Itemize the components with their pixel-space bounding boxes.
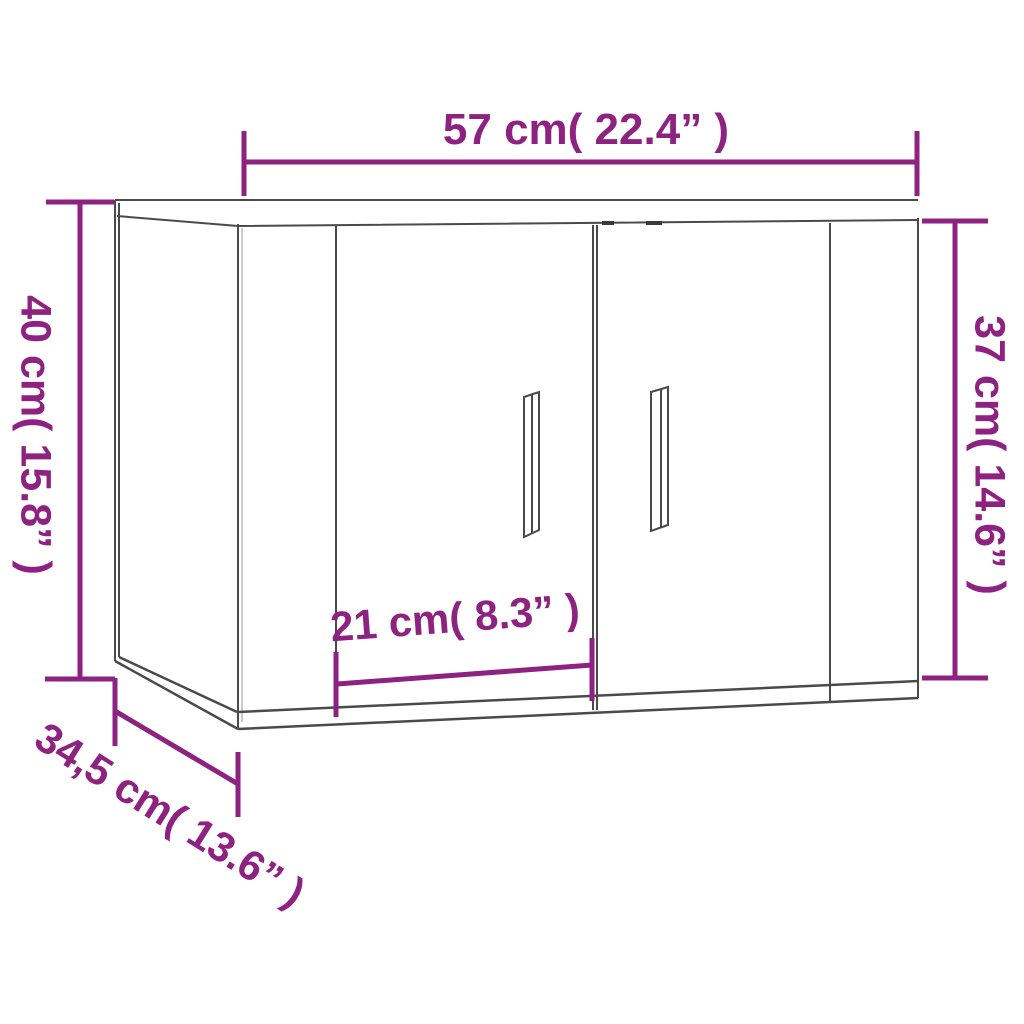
left-height-dimension-label: 40 cm( 15.8” ) <box>11 295 60 575</box>
cabinet-top-panel <box>115 200 918 226</box>
cabinet-outline <box>115 200 918 729</box>
cabinet-front-frame <box>238 218 918 729</box>
dimension-diagram: 57 cm( 22.4” ) 40 cm( 15.8” ) 37 cm( 14.… <box>0 0 1024 1024</box>
width-dimension-label: 57 cm( 22.4” ) <box>443 105 729 155</box>
left-door-handle <box>524 392 539 537</box>
right-height-dimension-label: 37 cm( 14.6” ) <box>965 315 1014 595</box>
right-door-handle <box>651 387 668 531</box>
dimension-lines <box>45 131 988 817</box>
cabinet-left-side-panel <box>115 200 238 729</box>
